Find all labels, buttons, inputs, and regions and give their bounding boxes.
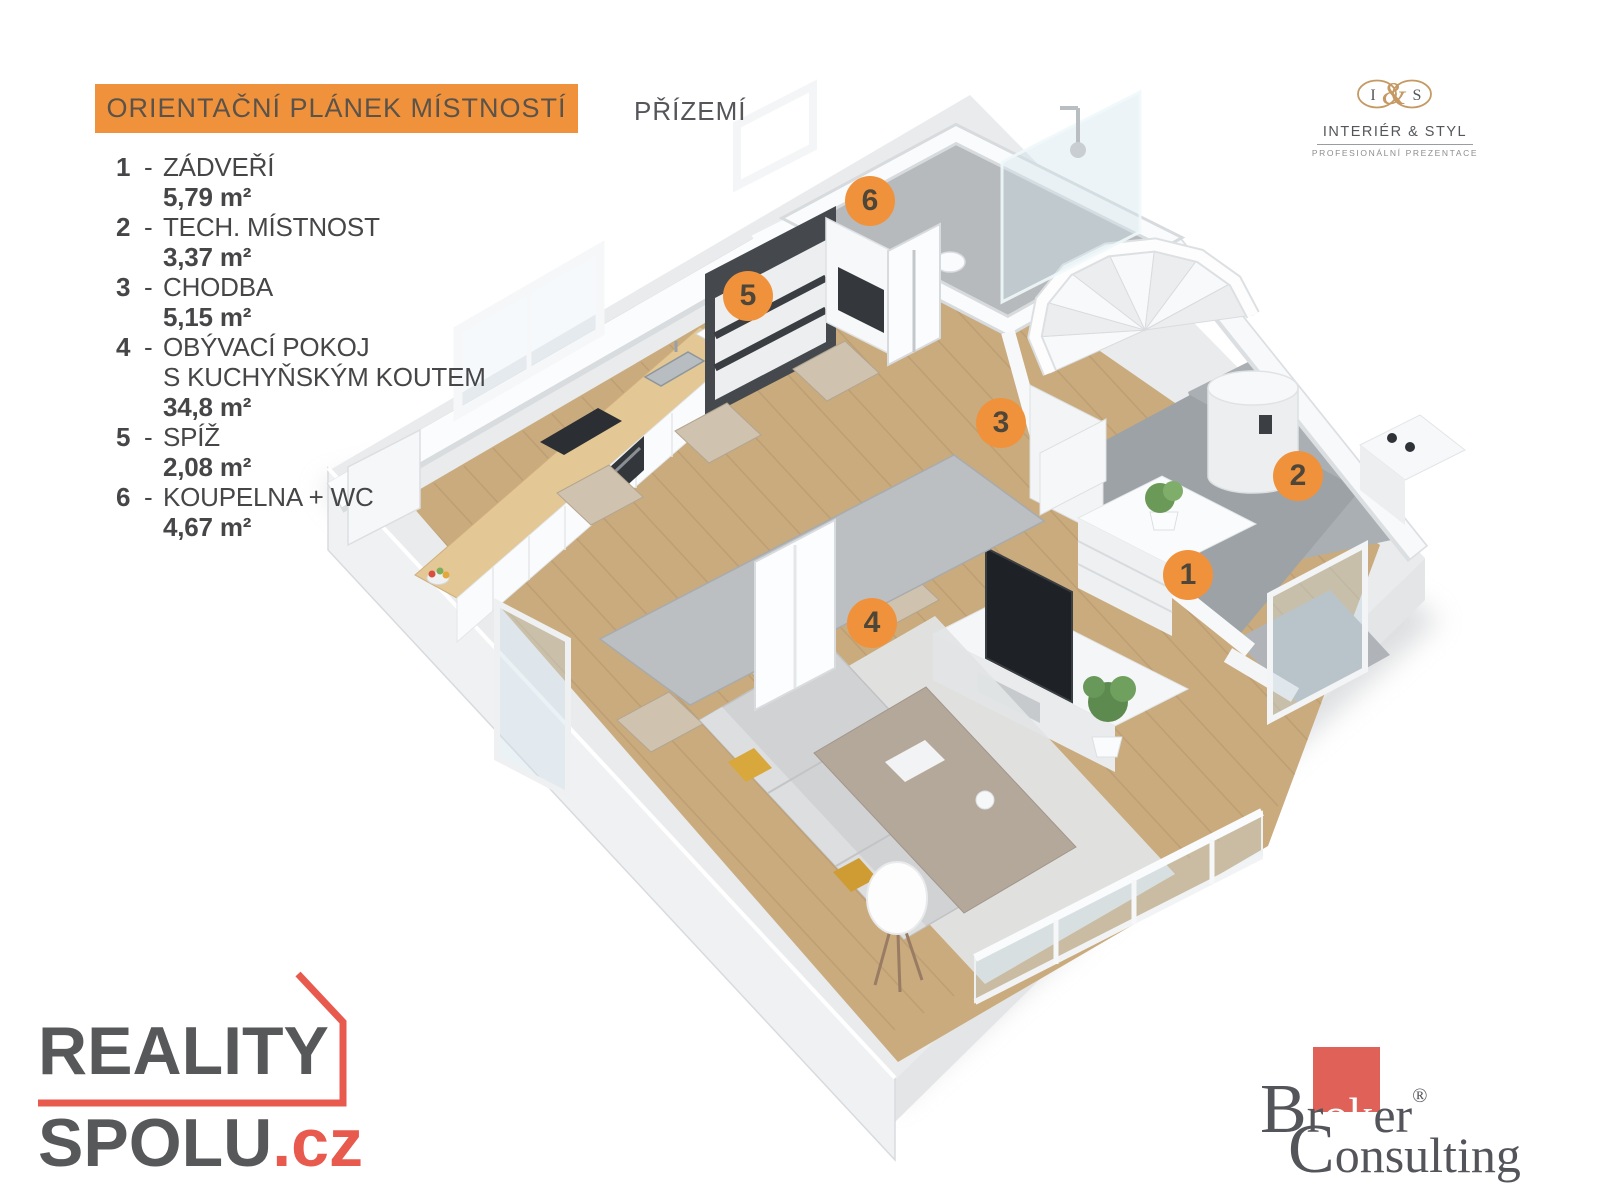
room-marker-number: 5 xyxy=(740,279,757,313)
interier-styl-name: INTERIÉR & STYL xyxy=(1317,124,1473,145)
legend-room-area: 2,08 m² xyxy=(163,452,486,482)
reality-spolu-word1: REALITY xyxy=(38,1012,329,1090)
legend-room-name: TECH. MÍSTNOST xyxy=(163,212,380,242)
legend-item: 3-CHODBA 5,15 m² xyxy=(116,272,486,332)
legend-number: 6 xyxy=(116,482,144,512)
svg-text:&: & xyxy=(1382,75,1407,111)
reality-spolu-word2: SPOLU.cz xyxy=(38,1104,363,1182)
legend-dash: - xyxy=(144,332,163,362)
legend-room-name: OBÝVACÍ POKOJ xyxy=(163,332,369,362)
legend-room-name: CHODBA xyxy=(163,272,273,302)
legend-dash: - xyxy=(144,272,163,302)
broker-consulting-logo: Broker® Consulting xyxy=(1240,1040,1600,1190)
interier-styl-tagline: PROFESIONÁLNÍ PREZENTACE xyxy=(1295,148,1495,158)
floor-label: PŘÍZEMÍ xyxy=(634,96,746,127)
legend-item: 1-ZÁDVEŘÍ 5,79 m² xyxy=(116,152,486,212)
legend-room-area: 5,79 m² xyxy=(163,182,486,212)
legend-number: 5 xyxy=(116,422,144,452)
registered-mark: ® xyxy=(1412,1085,1427,1107)
room-legend: 1-ZÁDVEŘÍ 5,79 m² 2-TECH. MÍSTNOST 3,37 … xyxy=(116,152,486,542)
page-title-text: ORIENTAČNÍ PLÁNEK MÍSTNOSTÍ xyxy=(106,93,566,124)
legend-number: 1 xyxy=(116,152,144,182)
interier-styl-monogram-icon: I S & xyxy=(1295,70,1495,118)
legend-room-area: 5,15 m² xyxy=(163,302,486,332)
floor-plan-flyer: ORIENTAČNÍ PLÁNEK MÍSTNOSTÍ PŘÍZEMÍ 1-ZÁ… xyxy=(0,0,1600,1200)
legend-room-name-2: S KUCHYŇSKÝM KOUTEM xyxy=(163,362,486,392)
room-marker-6: 6 xyxy=(845,176,895,226)
floating-window-frame xyxy=(737,86,813,186)
room-marker-3: 3 xyxy=(976,398,1026,448)
room-marker-number: 4 xyxy=(864,606,881,640)
interier-styl-logo: I S & INTERIÉR & STYL PROFESIONÁLNÍ PREZ… xyxy=(1295,70,1495,158)
svg-text:S: S xyxy=(1413,87,1422,104)
legend-dash: - xyxy=(144,482,163,512)
legend-dash: - xyxy=(144,422,163,452)
legend-item: 6-KOUPELNA + WC 4,67 m² xyxy=(116,482,486,542)
legend-room-name: SPÍŽ xyxy=(163,422,220,452)
legend-room-area: 34,8 m² xyxy=(163,392,486,422)
room-marker-number: 2 xyxy=(1290,459,1307,493)
legend-room-name: KOUPELNA + WC xyxy=(163,482,374,512)
legend-item: 5-SPÍŽ 2,08 m² xyxy=(116,422,486,482)
legend-item: 2-TECH. MÍSTNOST 3,37 m² xyxy=(116,212,486,272)
room-marker-number: 6 xyxy=(862,184,879,218)
legend-dash: - xyxy=(144,212,163,242)
shower-head xyxy=(1070,142,1086,158)
room-marker-number: 3 xyxy=(993,406,1010,440)
room-marker-2: 2 xyxy=(1273,451,1323,501)
reality-spolu-suffix: .cz xyxy=(272,1105,363,1181)
page-title: ORIENTAČNÍ PLÁNEK MÍSTNOSTÍ xyxy=(95,84,578,133)
legend-room-area: 4,67 m² xyxy=(163,512,486,542)
legend-room-name: ZÁDVEŘÍ xyxy=(163,152,274,182)
legend-number: 2 xyxy=(116,212,144,242)
legend-room-area: 3,37 m² xyxy=(163,242,486,272)
legend-dash: - xyxy=(144,152,163,182)
legend-number: 4 xyxy=(116,332,144,362)
svg-text:I: I xyxy=(1370,87,1375,104)
legend-item: 4-OBÝVACÍ POKOJ S KUCHYŇSKÝM KOUTEM 34,8… xyxy=(116,332,486,422)
room-marker-4: 4 xyxy=(847,598,897,648)
room-marker-5: 5 xyxy=(723,271,773,321)
room-marker-number: 1 xyxy=(1180,558,1197,592)
balcony-door-left xyxy=(497,603,568,795)
legend-number: 3 xyxy=(116,272,144,302)
room-marker-1: 1 xyxy=(1163,550,1213,600)
consulting-word: Consulting xyxy=(1288,1110,1521,1190)
